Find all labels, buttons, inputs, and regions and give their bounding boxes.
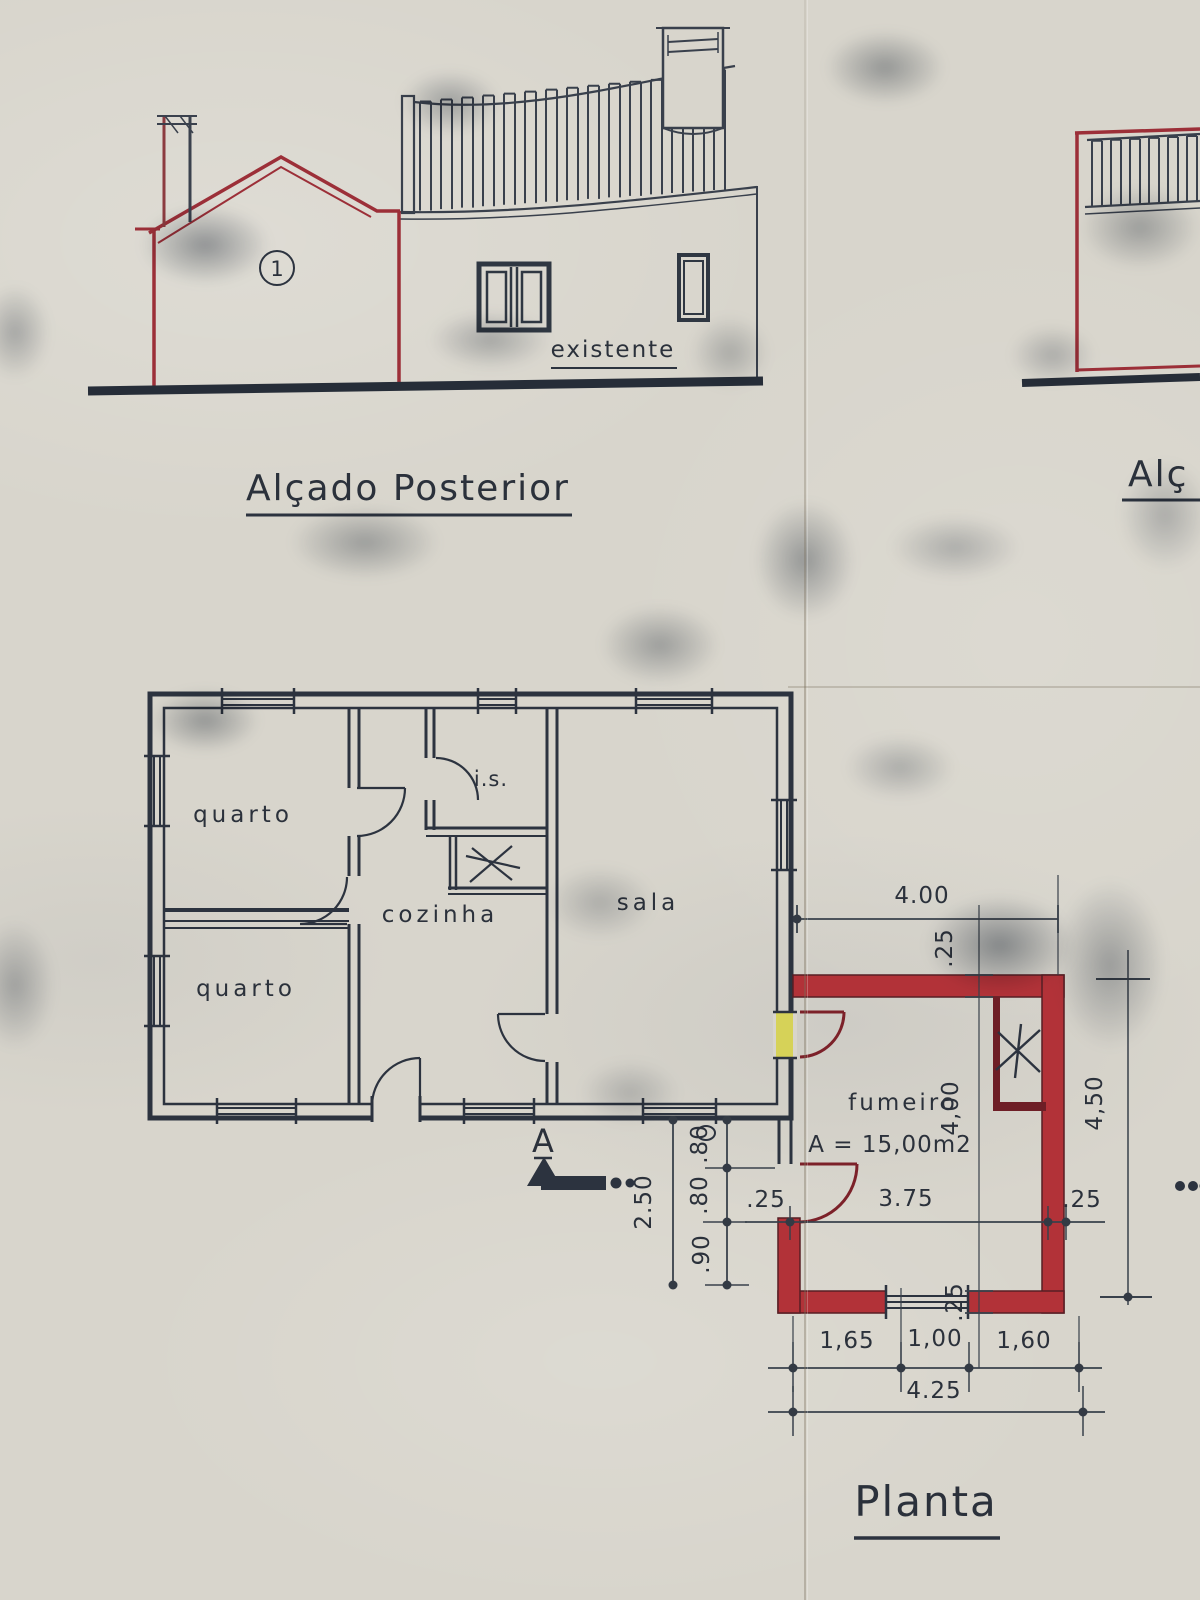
- partition-bedrooms: [349, 708, 359, 1104]
- floor-plan: quarto quarto cozinha i.s. sala: [144, 688, 797, 1164]
- window-double-icon: [479, 264, 549, 330]
- fence-right-balusters: [1092, 136, 1197, 206]
- fence-post: [402, 96, 414, 213]
- section-line-dot: [1188, 1181, 1198, 1191]
- section-arrow-bar: [541, 1176, 606, 1190]
- side-elevation-partial: Alç: [1022, 129, 1200, 500]
- room-label-bathroom: i.s.: [474, 767, 508, 791]
- dim-right-wall: .25: [1062, 1187, 1102, 1213]
- dim-bottom-wall: .25: [942, 1282, 968, 1322]
- dim-left-total: 2.50: [631, 1174, 657, 1229]
- unit-marker-number: 1: [270, 257, 283, 281]
- chimney-left-icon: [157, 116, 197, 227]
- wall-stub: [779, 1118, 791, 1164]
- tank-cross-icon: [996, 1024, 1040, 1078]
- door-opening: [371, 1092, 421, 1124]
- dim-inner-height: 4,00: [938, 1080, 964, 1135]
- fumeiro-addition: fumeiro A = 15,00m2: [773, 975, 1064, 1319]
- sink-cross-icon: [466, 846, 520, 882]
- ground-line-right: [1022, 377, 1200, 383]
- section-arrow-dot: [611, 1178, 622, 1189]
- room-label-living-room: sala: [617, 890, 680, 916]
- dim-left-wall: .25: [746, 1187, 786, 1213]
- dim-left-seg3: .90: [689, 1234, 715, 1274]
- room-label-kitchen: cozinha: [382, 902, 498, 928]
- room-label-bedroom-bottom: quarto: [196, 976, 296, 1002]
- new-work-gable: [135, 157, 400, 390]
- ground-line: [88, 381, 763, 391]
- rear-elevation: 1 existente Alçado Posterior: [88, 28, 763, 515]
- door-arcs: [300, 758, 545, 1106]
- partition-living-room: [547, 708, 557, 1104]
- partition-bathroom: [426, 708, 547, 894]
- rear-elevation-title: Alçado Posterior: [246, 468, 570, 509]
- dim-left-seg2: .80: [687, 1175, 713, 1215]
- existing-label: existente: [551, 337, 676, 363]
- dim-bottom-seg1: 1,65: [819, 1328, 874, 1354]
- drawing-canvas: 1 existente Alçado Posterior Alç: [0, 0, 1200, 1600]
- dim-bottom-total: 4.25: [906, 1378, 961, 1404]
- dim-top-width: 4.00: [894, 883, 949, 909]
- dim-inner-width: 3.75: [878, 1186, 933, 1212]
- dim-left-seg1: .80: [687, 1124, 713, 1164]
- window-narrow-icon: [679, 255, 708, 320]
- room-label-bedroom-top: quarto: [193, 802, 293, 828]
- fumeiro-door-arcs: [800, 1012, 857, 1222]
- section-line-dot: [1175, 1181, 1185, 1191]
- section-marker-letter: A: [532, 1122, 554, 1160]
- chimney-right-icon: [656, 28, 730, 134]
- dim-bottom-seg3: 1,60: [996, 1328, 1051, 1354]
- side-elevation-title: Alç: [1128, 454, 1188, 495]
- plan-title: Planta: [854, 1477, 998, 1526]
- scanned-architectural-drawing: 1 existente Alçado Posterior Alç: [0, 0, 1200, 1600]
- highlight-yellow-opening: [776, 1012, 793, 1058]
- dim-outer-height: 4,50: [1082, 1075, 1108, 1130]
- section-arrow-dot: [626, 1179, 635, 1188]
- dim-bottom-seg2: 1,00: [907, 1326, 962, 1352]
- dim-top-wall: .25: [932, 928, 958, 968]
- section-marker: A: [527, 1122, 635, 1190]
- new-work-wall-right: [1075, 129, 1200, 372]
